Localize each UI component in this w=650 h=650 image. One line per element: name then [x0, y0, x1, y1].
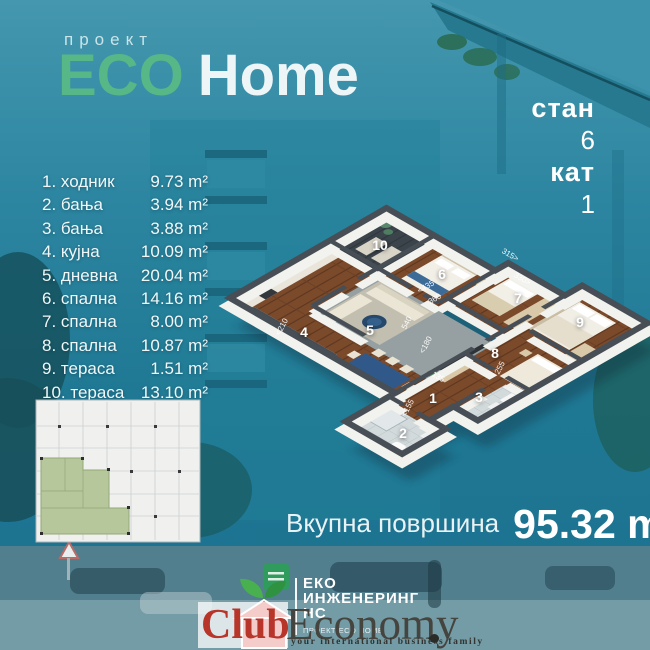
watermark-tagline: your international business family — [291, 637, 484, 647]
watermark-club: Club — [201, 601, 290, 649]
room-number-6: 6 — [438, 266, 446, 282]
room-number-1: 1 — [429, 390, 437, 406]
room-number-2: 2 — [399, 425, 407, 441]
room-number-4: 4 — [300, 324, 308, 340]
total-area-label: Вкупна површина — [286, 508, 499, 544]
leaf-icon — [240, 579, 263, 598]
total-area-value: 95.32 m2 — [513, 497, 650, 544]
logo-line-1: ЕКО — [303, 576, 419, 591]
room-number-10: 10 — [372, 237, 388, 253]
room-number-8: 8 — [491, 345, 499, 361]
total-area: Вкупна површина 95.32 m2 — [286, 497, 636, 544]
room-number-3: 3 — [475, 389, 483, 405]
room-number-5: 5 — [366, 322, 374, 338]
eco-home-poster: проект ECOHome стан 6 кат 1 1. ходник9.7… — [0, 0, 650, 650]
floor-plan-3d: 1 2 3 4 5 6 7 8 9 10 <435 360 315> 330> … — [0, 0, 650, 650]
room-number-7: 7 — [514, 290, 522, 306]
building-floor-plan-mini — [35, 396, 203, 548]
room-number-9: 9 — [576, 314, 584, 330]
